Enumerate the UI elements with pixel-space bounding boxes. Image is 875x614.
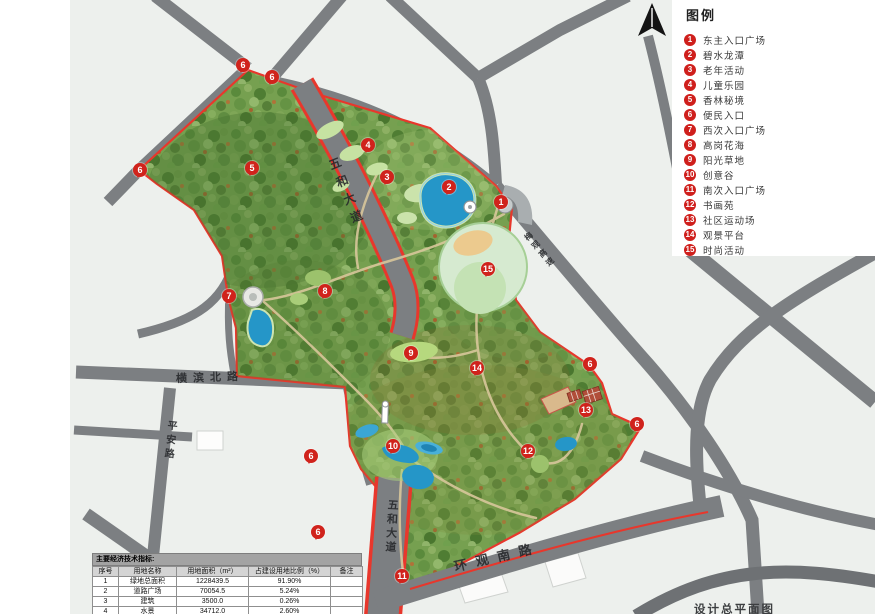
legend-label: 西次入口广场 — [703, 123, 766, 137]
economic-indicator-table: 主要经济技术指标: 序号用地名称用地面积（m²）占建设用地比例（%）备注 1绿地… — [92, 553, 362, 614]
map-marker-14: 14 — [470, 361, 484, 375]
legend-label: 东主入口广场 — [703, 33, 766, 47]
map-marker-6: 6 — [236, 58, 250, 72]
table-cell: 绿地总面积 — [119, 577, 177, 587]
legend-label: 老年活动 — [703, 63, 745, 77]
map-marker-6: 6 — [630, 417, 644, 431]
table-cell: 70054.5 — [177, 587, 249, 597]
legend-label: 香林秘境 — [703, 93, 745, 107]
legend-label: 观景平台 — [703, 228, 745, 242]
map-marker-6: 6 — [265, 70, 279, 84]
map-marker-1: 1 — [494, 195, 508, 209]
table-cell: 1228439.5 — [177, 577, 249, 587]
table-cell: 0.26% — [249, 597, 331, 607]
table-row: 2道路广场70054.55.24% — [93, 587, 363, 597]
map-marker-10: 10 — [386, 439, 400, 453]
legend-number-badge: 13 — [684, 214, 696, 226]
map-marker-15: 15 — [481, 262, 495, 276]
legend-number-badge: 3 — [684, 64, 696, 76]
map-marker-13: 13 — [579, 403, 593, 417]
legend-item-8: 8高岗花海 — [684, 139, 875, 151]
legend-label: 时尚活动 — [703, 243, 745, 257]
map-marker-6: 6 — [311, 525, 325, 539]
legend-number-badge: 1 — [684, 34, 696, 46]
table-column-header: 序号 — [93, 567, 119, 577]
legend-label: 书画苑 — [703, 198, 735, 212]
map-marker-6: 6 — [304, 449, 318, 463]
legend-number-badge: 8 — [684, 139, 696, 151]
legend-number-badge: 7 — [684, 124, 696, 136]
legend-item-12: 12书画苑 — [684, 199, 875, 211]
legend-list: 1东主入口广场2碧水龙潭3老年活动4儿童乐园5香林秘境6便民入口7西次入口广场8… — [672, 34, 875, 256]
legend-item-6: 6便民入口 — [684, 109, 875, 121]
legend-label: 高岗花海 — [703, 138, 745, 152]
legend-number-badge: 12 — [684, 199, 696, 211]
legend-label: 儿童乐园 — [703, 78, 745, 92]
legend-item-1: 1东主入口广场 — [684, 34, 875, 46]
legend-item-3: 3老年活动 — [684, 64, 875, 76]
map-marker-8: 8 — [318, 284, 332, 298]
legend-number-badge: 2 — [684, 49, 696, 61]
map-marker-4: 4 — [361, 138, 375, 152]
table-cell — [331, 597, 363, 607]
legend-label: 碧水龙潭 — [703, 48, 745, 62]
legend-item-14: 14观景平台 — [684, 229, 875, 241]
legend-item-4: 4儿童乐园 — [684, 79, 875, 91]
legend-number-badge: 9 — [684, 154, 696, 166]
map-marker-6: 6 — [583, 357, 597, 371]
legend-item-10: 10创意谷 — [684, 169, 875, 181]
legend-item-11: 11南次入口广场 — [684, 184, 875, 196]
legend-number-badge: 5 — [684, 94, 696, 106]
legend-number-badge: 6 — [684, 109, 696, 121]
table-cell — [331, 607, 363, 614]
table-column-header: 用地面积（m²） — [177, 567, 249, 577]
legend-item-5: 5香林秘境 — [684, 94, 875, 106]
legend-title: 图例 — [686, 5, 875, 24]
table-cell: 建筑 — [119, 597, 177, 607]
plan-title: 设计总平面图 — [694, 601, 775, 614]
legend-label: 阳光草地 — [703, 153, 745, 167]
table-cell: 3 — [93, 597, 119, 607]
map-marker-5: 5 — [245, 161, 259, 175]
table-cell: 道路广场 — [119, 587, 177, 597]
table-row: 4水景34712.02.60% — [93, 607, 363, 614]
table-row: 1绿地总面积1228439.591.90% — [93, 577, 363, 587]
legend-item-9: 9阳光草地 — [684, 154, 875, 166]
legend-number-badge: 10 — [684, 169, 696, 181]
table-body: 1绿地总面积1228439.591.90%2道路广场70054.55.24%3建… — [93, 577, 363, 614]
table-cell: 3500.0 — [177, 597, 249, 607]
table-cell — [331, 587, 363, 597]
table-cell: 水景 — [119, 607, 177, 614]
legend-panel: 图例 1东主入口广场2碧水龙潭3老年活动4儿童乐园5香林秘境6便民入口7西次入口… — [672, 0, 875, 256]
legend-label: 社区运动场 — [703, 213, 756, 227]
table-row: 3建筑3500.00.26% — [93, 597, 363, 607]
table-cell: 5.24% — [249, 587, 331, 597]
map-marker-9: 9 — [404, 346, 418, 360]
legend-item-15: 15时尚活动 — [684, 244, 875, 256]
table-cell: 2.60% — [249, 607, 331, 614]
table-cell — [331, 577, 363, 587]
table-cell: 4 — [93, 607, 119, 614]
table-cell: 2 — [93, 587, 119, 597]
legend-label: 便民入口 — [703, 108, 745, 122]
table-column-header: 用地名称 — [119, 567, 177, 577]
table-cell: 1 — [93, 577, 119, 587]
site-plan-page: 横滨北路平安路五和大道梅观高速五和大道环观南路 1234566666667891… — [0, 0, 875, 614]
legend-number-badge: 15 — [684, 244, 696, 256]
table-cell: 91.90% — [249, 577, 331, 587]
legend-item-7: 7西次入口广场 — [684, 124, 875, 136]
map-marker-7: 7 — [222, 289, 236, 303]
legend-number-badge: 11 — [684, 184, 696, 196]
legend-item-13: 13社区运动场 — [684, 214, 875, 226]
map-marker-12: 12 — [521, 444, 535, 458]
legend-number-badge: 4 — [684, 79, 696, 91]
table-column-header: 备注 — [331, 567, 363, 577]
map-marker-2: 2 — [442, 180, 456, 194]
table-header-row: 序号用地名称用地面积（m²）占建设用地比例（%）备注 — [93, 567, 363, 577]
map-marker-6: 6 — [133, 163, 147, 177]
legend-number-badge: 14 — [684, 229, 696, 241]
legend-item-2: 2碧水龙潭 — [684, 49, 875, 61]
table-cell: 34712.0 — [177, 607, 249, 614]
table-title: 主要经济技术指标: — [92, 553, 362, 566]
map-marker-3: 3 — [380, 170, 394, 184]
legend-label: 创意谷 — [703, 168, 735, 182]
map-marker-11: 11 — [395, 569, 409, 583]
legend-label: 南次入口广场 — [703, 183, 766, 197]
table-column-header: 占建设用地比例（%） — [249, 567, 331, 577]
